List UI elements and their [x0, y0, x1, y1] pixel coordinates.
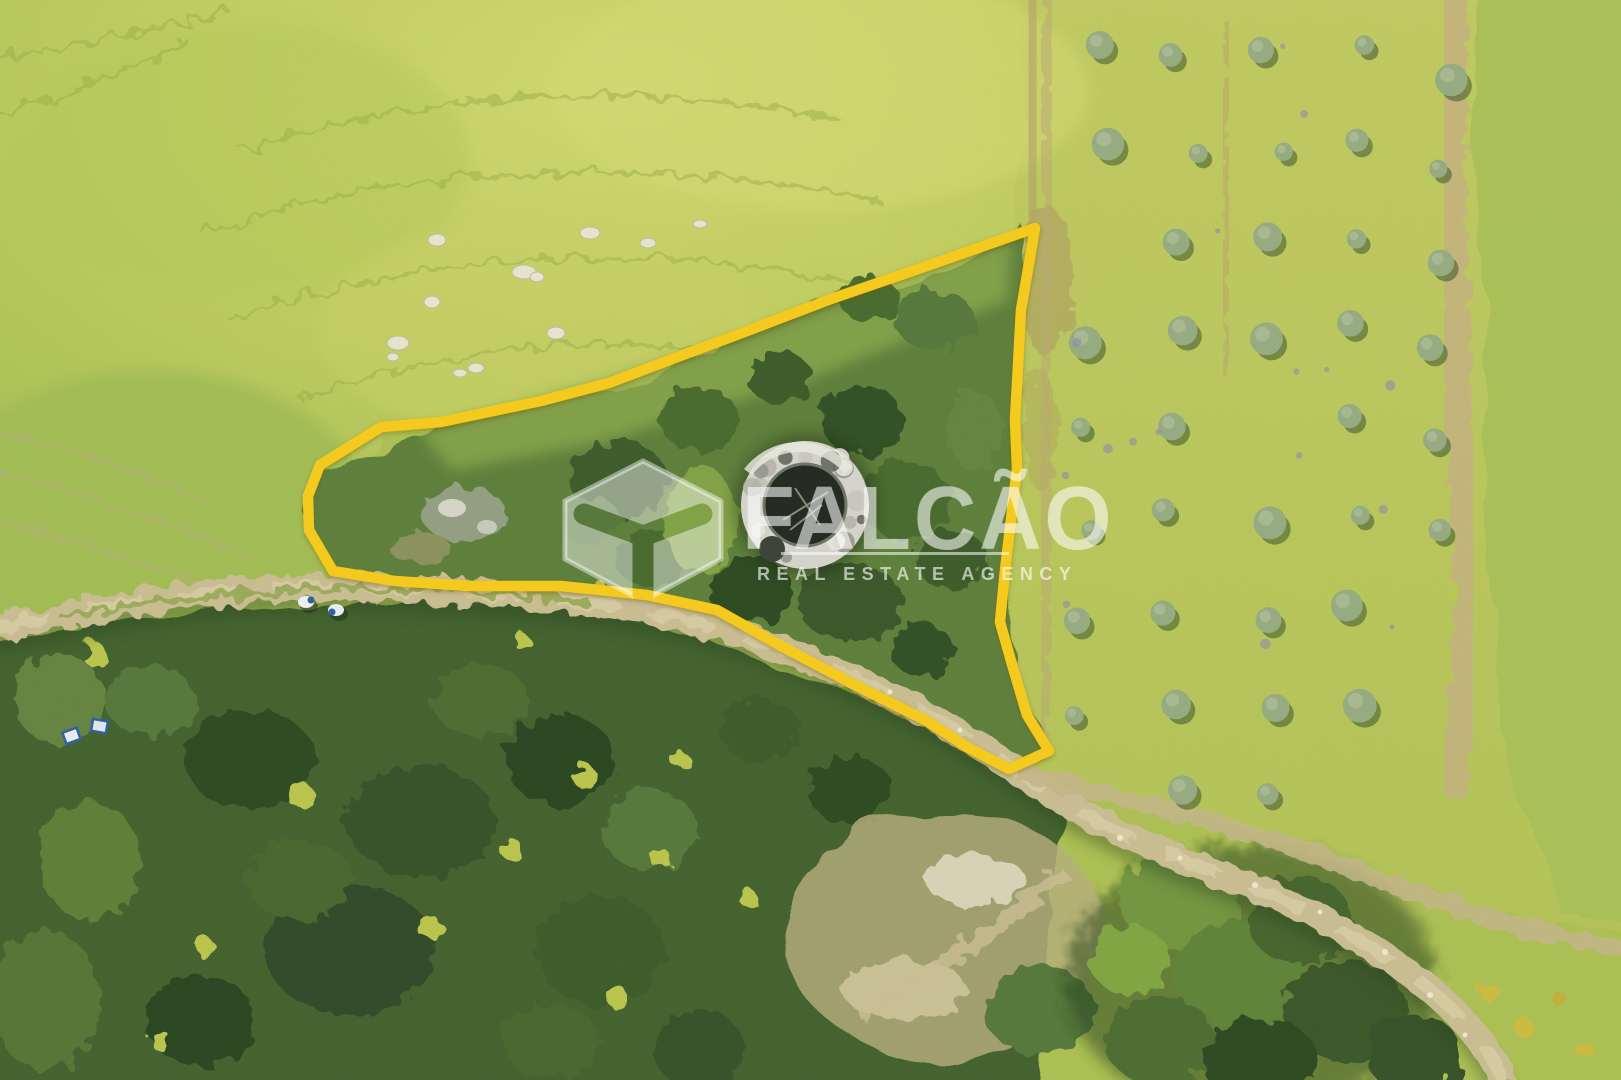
terrain-graphic — [0, 0, 1621, 1080]
grain-overlay — [0, 0, 1621, 1080]
aerial-photo: FALCÃO REAL ESTATE AGENCY — [0, 0, 1621, 1080]
